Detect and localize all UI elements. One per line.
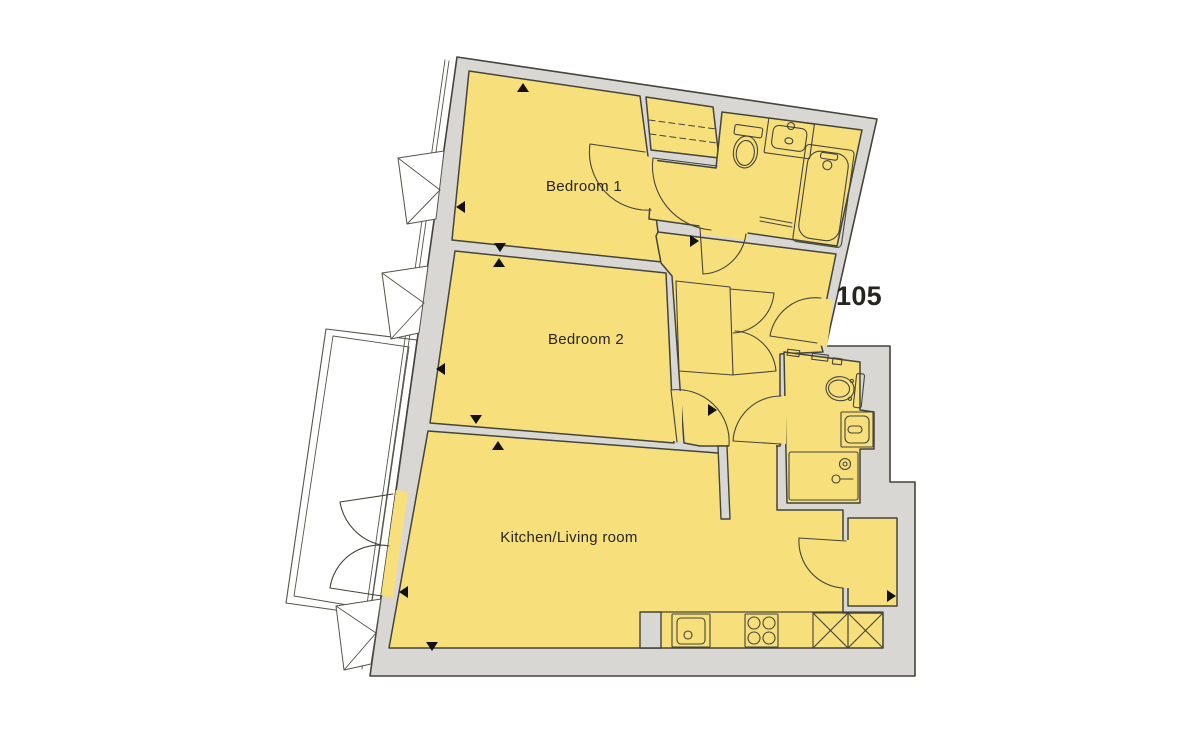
room-bedroom-1 xyxy=(452,71,662,262)
label-unit-number: 105 xyxy=(836,281,882,311)
opening-ensuite xyxy=(775,396,786,444)
label-bedroom-2: Bedroom 2 xyxy=(548,331,624,348)
floor-plan-canvas: Bedroom 1Bedroom 2Kitchen/Living room105 xyxy=(0,0,1200,733)
label-bedroom-1: Bedroom 1 xyxy=(546,178,622,195)
label-kitchen-living: Kitchen/Living room xyxy=(500,529,637,546)
opening-storage xyxy=(842,540,851,588)
room-ensuite xyxy=(784,352,874,503)
kitchen-pier xyxy=(640,612,661,648)
floor-plan: Bedroom 1Bedroom 2Kitchen/Living room105 xyxy=(0,0,1200,733)
room-closet xyxy=(646,97,719,158)
